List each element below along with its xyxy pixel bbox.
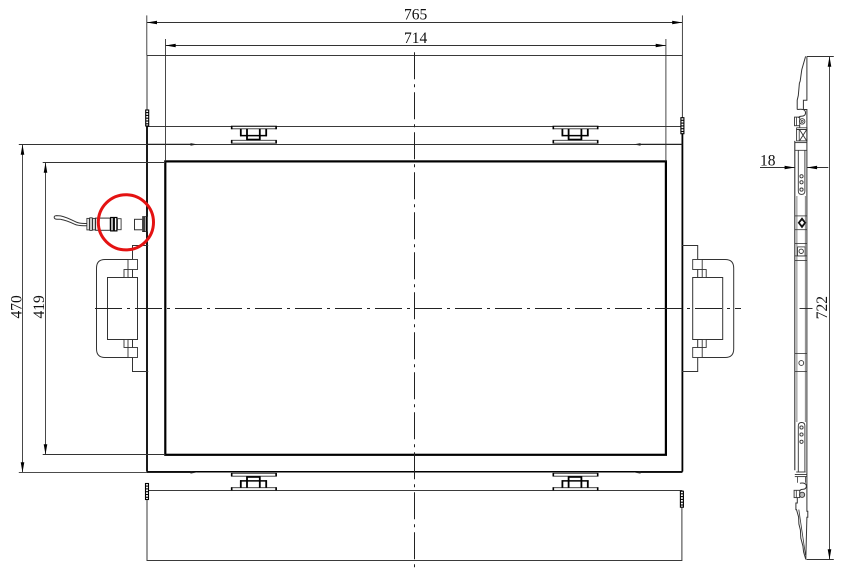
svg-text:470: 470 — [9, 295, 26, 319]
svg-text:714: 714 — [404, 30, 428, 47]
svg-text:765: 765 — [404, 6, 428, 23]
svg-text:419: 419 — [31, 295, 48, 319]
svg-text:18: 18 — [760, 152, 776, 169]
svg-text:722: 722 — [814, 296, 831, 319]
